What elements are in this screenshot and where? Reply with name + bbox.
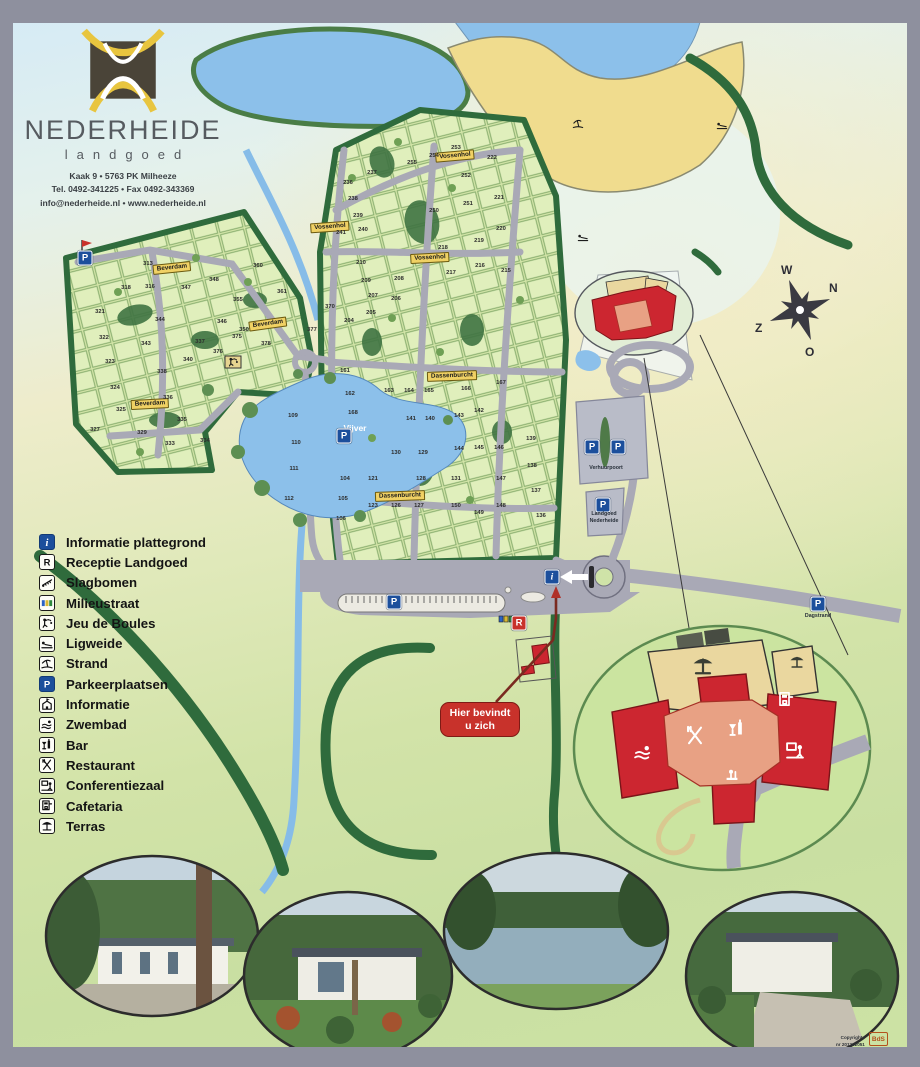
plot-number: 143: [454, 413, 464, 419]
legend-label: Strand: [66, 656, 108, 671]
cafetaria-icon: [776, 690, 796, 710]
plot-number: 105: [338, 496, 348, 502]
plot-number: 208: [394, 276, 404, 282]
strand-icon: [39, 656, 55, 672]
reception-badge-icon: R: [512, 616, 527, 631]
area-label-verhuurpoort: Verhuurpoort: [589, 465, 623, 471]
plot-number: 336: [163, 395, 173, 401]
plot-number: 325: [116, 407, 126, 413]
address-line-1: Kaak 9 • 5763 PK Milheeze: [23, 170, 223, 183]
svg-text:R: R: [44, 558, 51, 569]
plot-number: 251: [463, 201, 473, 207]
plot-number: 137: [531, 488, 541, 494]
legend-item-parkeerplaatsen: PParkeerplaatsen: [39, 674, 206, 694]
plot-number: 313: [143, 261, 153, 267]
svg-text:i: i: [46, 538, 49, 549]
restaurant-icon: [683, 724, 707, 748]
legend-item-informatie: Informatie: [39, 694, 206, 714]
legend-item-slagbomen: Slagbomen: [39, 573, 206, 593]
plot-number: 121: [368, 476, 378, 482]
legend-label: Ligweide: [66, 636, 122, 651]
plot-number: 378: [261, 341, 271, 347]
lounger-icon: [577, 231, 590, 244]
plot-number: 329: [137, 430, 147, 436]
parking-badge-icon: P: [611, 440, 626, 455]
plot-number: 343: [141, 341, 151, 347]
terras-icon: [690, 653, 716, 679]
plot-number: 112: [284, 496, 293, 502]
p-icon: P: [39, 676, 55, 692]
compass-star-icon: [755, 265, 845, 355]
bar-icon: [39, 737, 55, 753]
plot-number: 334: [200, 438, 210, 444]
brand-subtitle: landgoed: [23, 147, 223, 162]
area-label-dagstrand: Dagstrand: [805, 613, 831, 619]
plot-number: 149: [474, 510, 484, 516]
plot-number: 255: [407, 160, 417, 166]
legend-item-cafetaria: Cafetaria: [39, 796, 206, 816]
magnifier-line-1: [700, 335, 848, 655]
plot-number: 222: [487, 155, 497, 161]
legend-label: Restaurant: [66, 758, 135, 773]
plot-number: 375: [232, 334, 242, 340]
plot-number: 129: [418, 450, 428, 456]
plot-number: 377: [307, 327, 317, 333]
plot-number: 205: [366, 310, 376, 316]
reception-icon: [723, 767, 743, 787]
plot-number: 253: [451, 145, 461, 151]
plot-number: 145: [474, 445, 484, 451]
plot-number: 218: [438, 245, 448, 251]
plot-number: 250: [429, 208, 439, 214]
photo-oval-4: [684, 890, 904, 1047]
legend-label: Conferentiezaal: [66, 778, 164, 793]
plot-number: 219: [474, 238, 484, 244]
legend-label: Milieustraat: [66, 596, 139, 611]
boules-icon: [39, 615, 55, 631]
photo-oval-3: [440, 850, 678, 1014]
legend-item-conferentiezaal: Conferentiezaal: [39, 776, 206, 796]
plot-number: 123: [368, 503, 378, 509]
you-are-here-line2: u zich: [444, 720, 516, 733]
plot-number: 204: [344, 318, 354, 324]
plot-number: 148: [496, 503, 506, 509]
plot-number: 338: [157, 369, 167, 375]
legend-item-restaurant: Restaurant: [39, 755, 206, 775]
printer-logo: BdS: [869, 1032, 888, 1046]
plot-number: 140: [425, 416, 435, 422]
legend-item-ligweide: Ligweide: [39, 633, 206, 653]
plot-number: 221: [494, 195, 504, 201]
plot-number: 165: [424, 388, 434, 394]
bins-icon: [39, 595, 55, 611]
plot-number: 238: [348, 196, 358, 202]
magnifier-line-2: [644, 358, 690, 634]
parking-strip: [338, 594, 505, 612]
plot-number: 252: [461, 173, 471, 179]
plot-number: 144: [454, 446, 464, 452]
brand-title: NEDERHEIDE: [23, 115, 223, 146]
plot-number: 217: [446, 270, 456, 276]
plot-number: 239: [353, 213, 363, 219]
copyright-block: Copyrights nr 201202051 BdS MEIJEL: [836, 1032, 888, 1047]
restaurant-icon: [39, 757, 55, 773]
road-label-vossenhol: Vossenhol: [410, 252, 450, 264]
hedge-loop: [325, 648, 432, 855]
entrance-barrier: [589, 566, 594, 588]
copyright-line2: nr 201202051: [836, 1042, 865, 1047]
road-label-dassenburcht: Dassenburcht: [375, 490, 425, 502]
lounger-icon: [39, 636, 55, 652]
legend-label: Parkeerplaatsen: [66, 677, 168, 692]
bar-icon: [726, 718, 748, 740]
legend-item-zwembad: Zwembad: [39, 715, 206, 735]
plot-number: 241: [336, 230, 346, 236]
lounger-icon: [716, 119, 729, 132]
compass-north: N: [829, 281, 838, 295]
legend-item-terras: Terras: [39, 816, 206, 836]
plot-number: 106: [336, 516, 346, 522]
plot-number: 344: [155, 317, 165, 323]
info-icon: i: [39, 534, 55, 550]
plot-number: 335: [177, 417, 187, 423]
boules-icon: [227, 356, 240, 369]
address-line-3: info@nederheide.nl • www.nederheide.nl: [23, 197, 223, 210]
plot-number: 146: [494, 445, 504, 451]
facility-inset: [574, 626, 870, 870]
conference-icon: [39, 778, 55, 794]
plot-number: 324: [110, 385, 120, 391]
swim-icon: [632, 742, 654, 764]
legend-label: Receptie Landgoed: [66, 555, 188, 570]
legend-label: Informatie: [66, 697, 130, 712]
plot-number: 206: [391, 296, 401, 302]
nederheide-logo: [80, 27, 166, 113]
plot-number: 127: [414, 503, 424, 509]
plot-number: 209: [361, 278, 371, 284]
area-label-nederheide: Nederheide: [590, 518, 619, 524]
plot-number: 316: [145, 284, 155, 290]
legend-item-strand: Strand: [39, 654, 206, 674]
plot-number: 130: [391, 450, 401, 456]
terras-icon: [39, 818, 55, 834]
plot-number: 240: [358, 227, 368, 233]
barrier-icon: [39, 575, 55, 591]
legend-label: Cafetaria: [66, 799, 122, 814]
plot-number: 337: [195, 339, 205, 345]
brand-header: NEDERHEIDE landgoed Kaak 9 • 5763 PK Mil…: [23, 23, 223, 210]
legend-label: Zwembad: [66, 717, 127, 732]
svg-text:P: P: [44, 680, 50, 691]
legend-item-receptie-landgoed: RReceptie Landgoed: [39, 552, 206, 572]
terras-icon: [788, 653, 806, 671]
plot-number: 360: [253, 263, 263, 269]
plot-number: 104: [340, 476, 350, 482]
plot-number: 236: [343, 180, 353, 186]
legend-item-bar: Bar: [39, 735, 206, 755]
parking-badge-icon: P: [78, 251, 93, 266]
plot-number: 370: [325, 304, 335, 310]
compass-south: Z: [755, 321, 762, 335]
plot-number: 237: [367, 170, 377, 176]
legend-label: Jeu de Boules: [66, 616, 155, 631]
plot-number: 126: [391, 503, 401, 509]
plot-number: 318: [121, 285, 131, 291]
plot-number: 109: [288, 413, 298, 419]
legend-label: Informatie plattegrond: [66, 535, 206, 550]
parking-badge-icon: P: [387, 595, 402, 610]
you-are-here-line1: Hier bevindt: [444, 707, 516, 720]
r-icon: R: [39, 554, 55, 570]
house-icon: [39, 697, 55, 713]
copyright-line1: Copyrights: [836, 1035, 865, 1042]
legend-label: Terras: [66, 819, 105, 834]
information-badge-icon: i: [545, 570, 560, 585]
legend-item-jeu-de-boules: Jeu de Boules: [39, 613, 206, 633]
plot-number: 254: [429, 153, 439, 159]
compass-west: W: [781, 263, 792, 277]
plot-number: 147: [496, 476, 506, 482]
plot-number: 376: [213, 349, 223, 355]
parking-badge-icon: P: [811, 597, 826, 612]
plot-number: 340: [183, 357, 193, 363]
you-are-here-callout: Hier bevindt u zich: [440, 702, 520, 737]
legend-item-informatie-plattegrond: iInformatie plattegrond: [39, 532, 206, 552]
plot-number: 346: [217, 319, 227, 325]
road-label-dassenburcht: Dassenburcht: [427, 370, 477, 382]
plot-number: 348: [209, 277, 219, 283]
plot-number: 164: [404, 388, 414, 394]
strand-icon: [572, 118, 585, 131]
map-canvas: Vijver: [13, 23, 907, 1047]
plot-number: 167: [496, 380, 506, 386]
plot-number: 168: [348, 410, 358, 416]
plot-number: 142: [474, 408, 484, 414]
plot-number: 163: [384, 388, 394, 394]
parking-badge-icon: P: [337, 429, 352, 444]
parking-badge-icon: P: [585, 440, 600, 455]
plot-number: 166: [461, 386, 471, 392]
plot-number: 215: [501, 268, 511, 274]
plot-number: 216: [475, 263, 485, 269]
legend-item-milieustraat: Milieustraat: [39, 593, 206, 613]
area-label-landgoed: Landgoed: [591, 511, 616, 517]
conference-icon: [784, 740, 806, 762]
cafetaria-icon: [39, 798, 55, 814]
address-line-2: Tel. 0492-341225 • Fax 0492-343369: [23, 183, 223, 196]
plot-number: 321: [95, 309, 105, 315]
plot-number: 347: [181, 285, 191, 291]
photo-oval-2: [240, 890, 460, 1047]
map-poster: Vijver: [0, 0, 920, 1067]
compass-rose: W N Z O: [755, 265, 845, 355]
plot-number: 323: [105, 359, 115, 365]
plot-number: 361: [277, 289, 287, 295]
plot-number: 131: [451, 476, 461, 482]
plot-number: 150: [451, 503, 461, 509]
plot-number: 111: [289, 466, 298, 472]
plot-number: 322: [99, 335, 109, 341]
plot-number: 350: [239, 327, 249, 333]
photo-oval-1: [40, 852, 270, 1024]
swim-icon: [39, 717, 55, 733]
plot-number: 139: [526, 436, 536, 442]
plot-number: 355: [233, 297, 243, 303]
legend-label: Slagbomen: [66, 575, 137, 590]
plot-number: 161: [340, 368, 350, 374]
legend-label: Bar: [66, 738, 88, 753]
plot-number: 141: [406, 416, 416, 422]
plot-number: 333: [165, 441, 175, 447]
plot-number: 207: [368, 293, 378, 299]
plot-number: 220: [496, 226, 506, 232]
compass-east: O: [805, 345, 814, 359]
plot-number: 136: [536, 513, 546, 519]
plot-number: 128: [416, 476, 426, 482]
plot-number: 210: [356, 260, 366, 266]
plot-number: 327: [90, 427, 100, 433]
plot-number: 110: [291, 440, 300, 446]
map-legend: iInformatie plattegrondRReceptie Landgoe…: [39, 532, 206, 836]
plot-number: 138: [527, 463, 537, 469]
plot-number: 162: [345, 391, 355, 397]
